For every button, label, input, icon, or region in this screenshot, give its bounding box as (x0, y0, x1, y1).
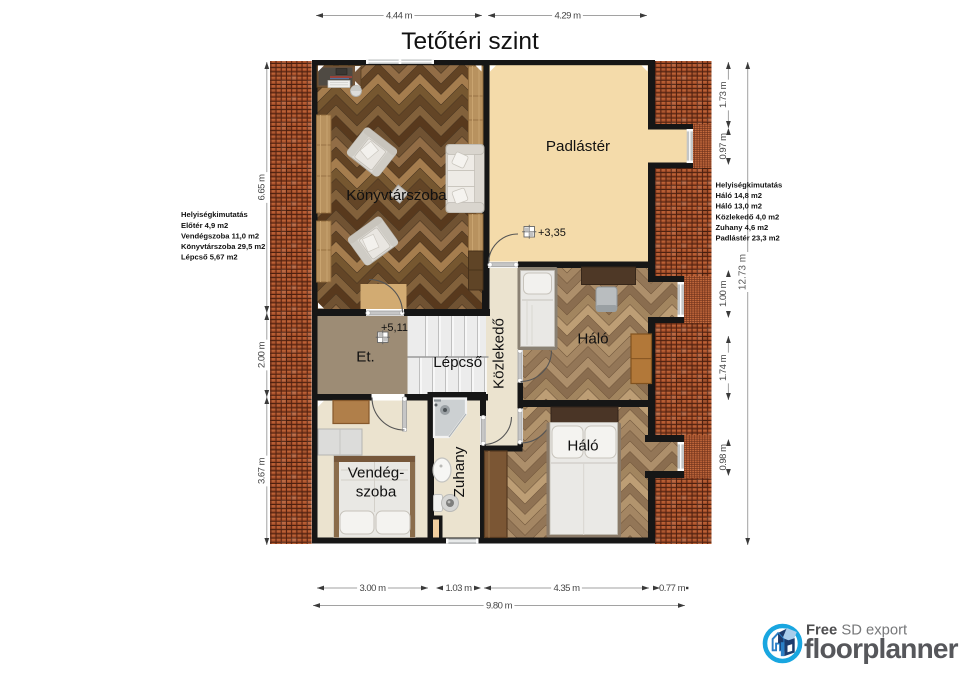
svg-text:floorplanner: floorplanner (804, 633, 959, 664)
svg-text:Helyiségkimutatás: Helyiségkimutatás (716, 181, 783, 190)
svg-text:Közlekedő 4,0 m2: Közlekedő 4,0 m2 (716, 212, 780, 221)
svg-text:Et.: Et. (356, 349, 375, 366)
svg-text:+5,11: +5,11 (381, 322, 408, 334)
svg-text:Könyvtárszoba 29,5 m2: Könyvtárszoba 29,5 m2 (181, 242, 265, 251)
svg-text:Lépcső: Lépcső (433, 354, 482, 371)
svg-text:Vendég-: Vendég- (348, 465, 405, 482)
svg-text:3.67 m: 3.67 m (257, 457, 268, 484)
svg-text:+3,35: +3,35 (538, 227, 566, 239)
svg-text:2.00 m: 2.00 m (257, 341, 268, 368)
svg-text:Közlekedő: Közlekedő (491, 318, 508, 389)
svg-text:6.65 m: 6.65 m (257, 174, 268, 201)
svg-text:szoba: szoba (356, 484, 397, 501)
svg-text:Vendégszoba 11,0 m2: Vendégszoba 11,0 m2 (181, 231, 259, 240)
svg-text:1.74 m: 1.74 m (718, 354, 729, 381)
svg-text:3.00 m: 3.00 m (359, 583, 386, 594)
svg-text:Könyvtárszoba: Könyvtárszoba (346, 187, 447, 204)
svg-text:0.97 m: 0.97 m (718, 133, 729, 160)
svg-text:Helyiségkimutatás: Helyiségkimutatás (181, 210, 248, 219)
svg-text:Zuhany: Zuhany (451, 446, 468, 497)
svg-text:Zuhany 4,6 m2: Zuhany 4,6 m2 (716, 223, 769, 232)
svg-text:Háló 14,8 m2: Háló 14,8 m2 (716, 191, 762, 200)
svg-text:12.73 m: 12.73 m (738, 254, 749, 290)
svg-text:1.00 m: 1.00 m (718, 280, 729, 307)
svg-text:Háló 13,0 m2: Háló 13,0 m2 (716, 202, 762, 211)
svg-text:Előtér 4,9 m2: Előtér 4,9 m2 (181, 221, 228, 230)
svg-text:1.73 m: 1.73 m (718, 81, 729, 108)
svg-text:Tetőtéri szint: Tetőtéri szint (401, 28, 539, 55)
svg-text:9.80 m: 9.80 m (486, 601, 513, 612)
svg-text:Háló: Háló (567, 438, 598, 455)
svg-text:0.77 m: 0.77 m (659, 583, 686, 594)
svg-text:4.29 m: 4.29 m (554, 11, 581, 22)
svg-text:Lépcső 5,67 m2: Lépcső 5,67 m2 (181, 253, 238, 262)
svg-text:0.98 m: 0.98 m (718, 444, 729, 471)
svg-text:4.35 m: 4.35 m (553, 583, 580, 594)
svg-text:Padlástér: Padlástér (546, 138, 610, 155)
svg-text:Háló: Háló (577, 331, 608, 348)
svg-text:4.44 m: 4.44 m (386, 11, 413, 22)
svg-text:Padlástér 23,3 m2: Padlástér 23,3 m2 (716, 234, 780, 243)
svg-text:1.03 m: 1.03 m (445, 583, 472, 594)
